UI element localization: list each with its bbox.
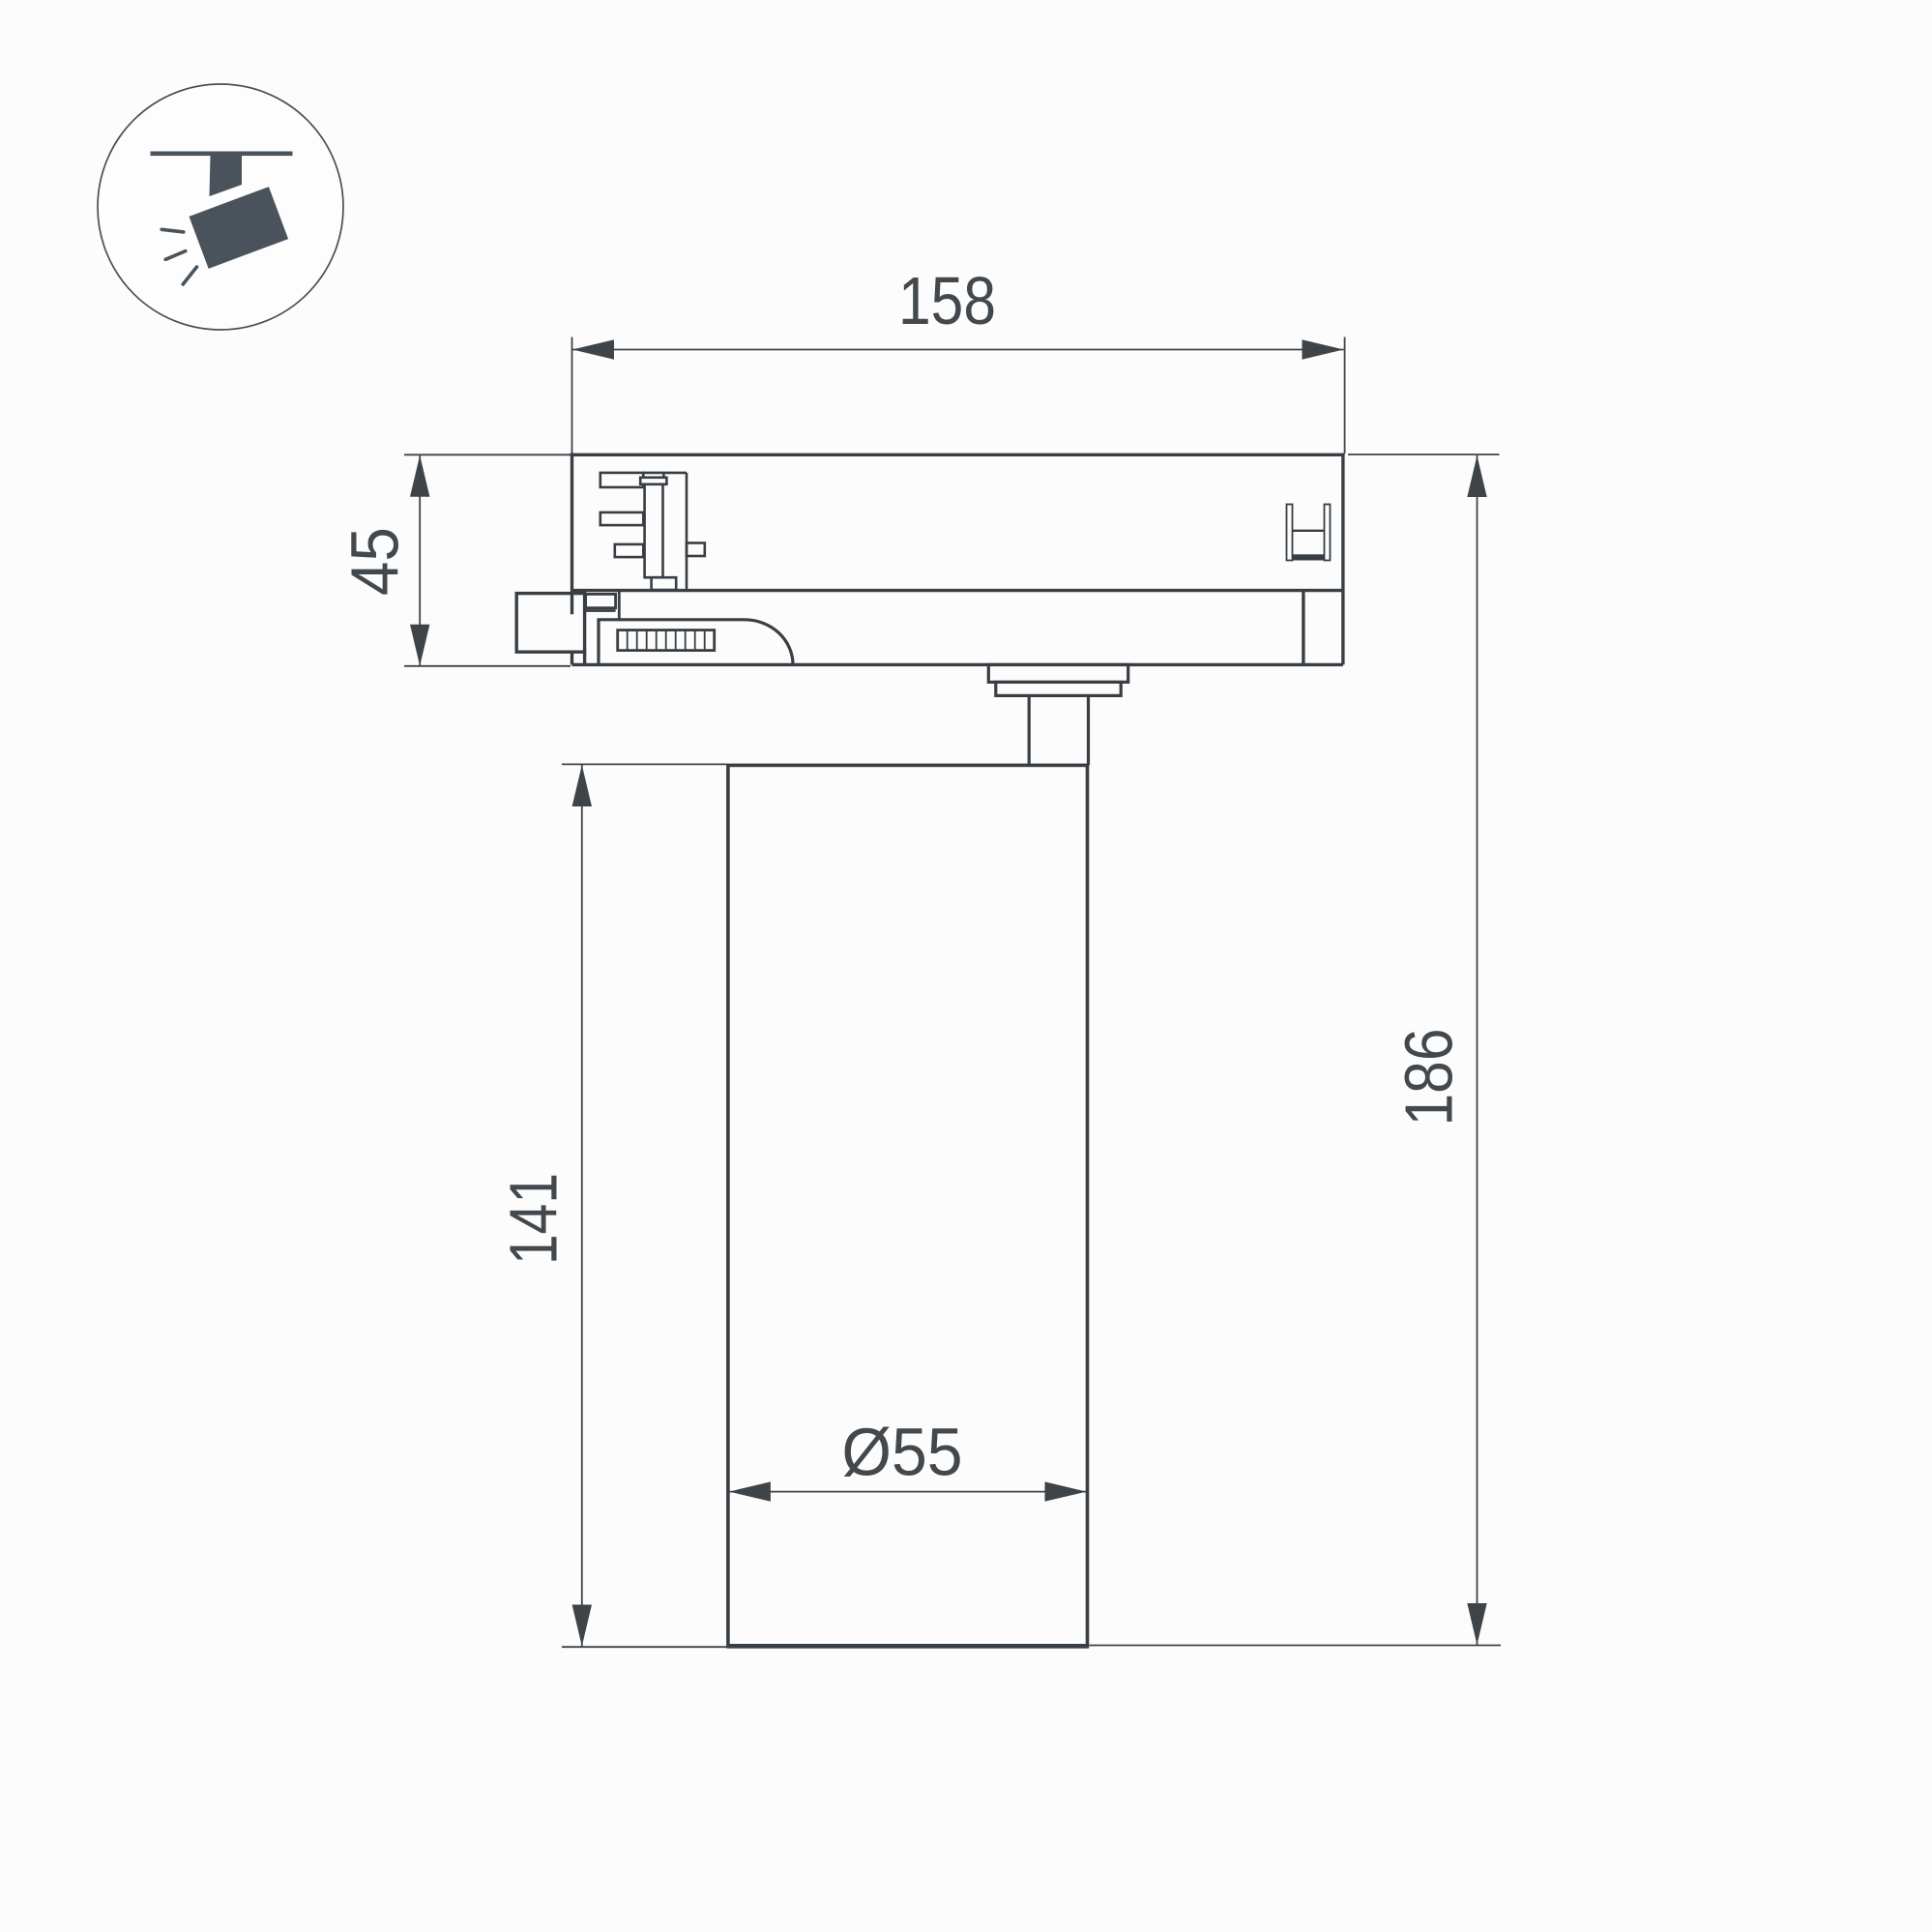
svg-text:141: 141: [496, 1173, 571, 1265]
svg-text:45: 45: [337, 527, 413, 596]
svg-text:158: 158: [898, 263, 996, 338]
svg-text:Ø55: Ø55: [842, 1415, 963, 1490]
svg-text:186: 186: [1391, 1029, 1467, 1127]
